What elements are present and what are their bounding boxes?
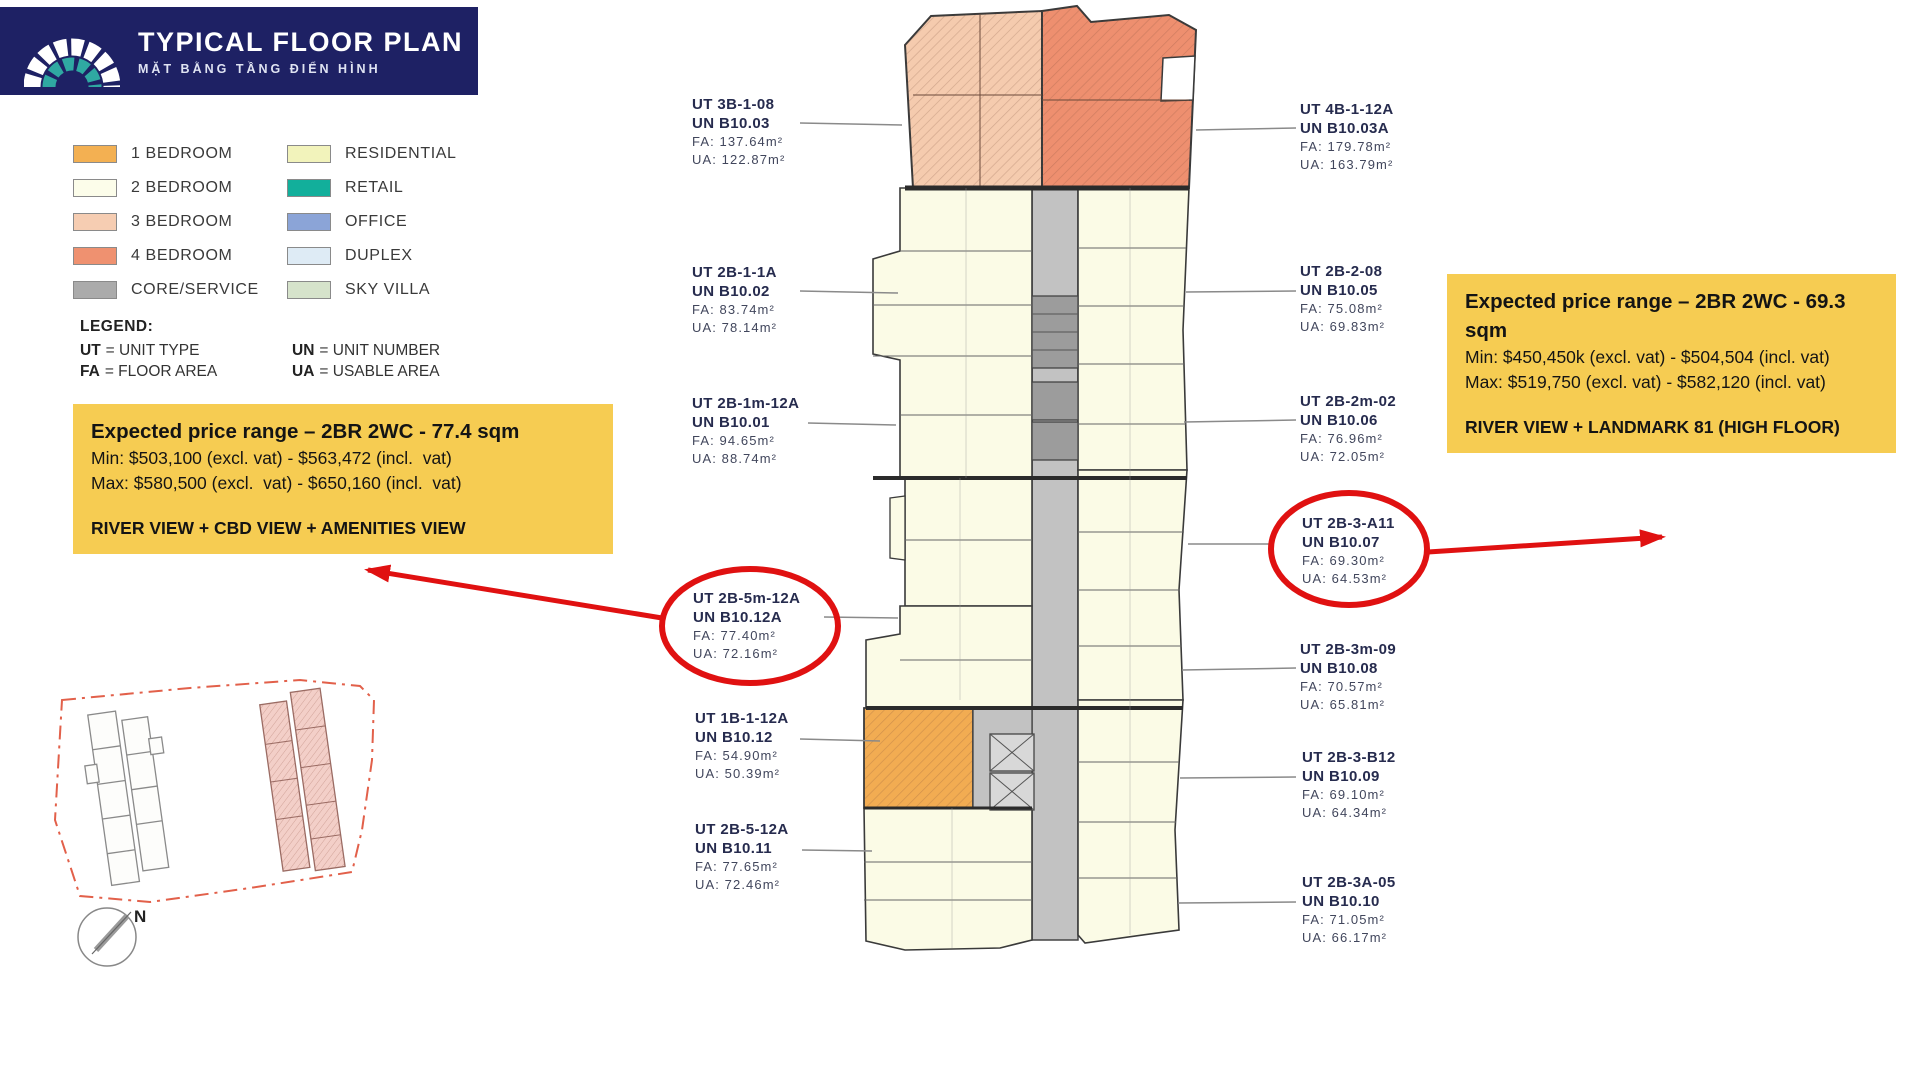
floor-area: FA: 94.65m² [692, 432, 799, 450]
unit-number: UN B10.06 [1300, 411, 1396, 430]
north-label: N [134, 907, 146, 926]
unit-number: UN B10.05 [1300, 281, 1385, 300]
typical-floor-plan-page: TYPICAL FLOOR PLAN MẶT BẰNG TẦNG ĐIỂN HÌ… [0, 0, 1920, 1080]
unit-type: UT 1B-1-12A [695, 709, 789, 728]
unit-type: UT 2B-3-B12 [1302, 748, 1396, 767]
floor-area: FA: 70.57m² [1300, 678, 1396, 696]
usable-area: UA: 64.53m² [1302, 570, 1395, 588]
usable-area: UA: 163.79m² [1300, 156, 1394, 174]
floor-area: FA: 76.96m² [1300, 430, 1396, 448]
unit-label-B10.01: UT 2B-1m-12A UN B10.01 FA: 94.65m² UA: 8… [692, 394, 799, 468]
usable-area: UA: 72.05m² [1300, 448, 1396, 466]
usable-area: UA: 72.16m² [693, 645, 800, 663]
floor-area: FA: 69.10m² [1302, 786, 1396, 804]
floor-area: FA: 75.08m² [1300, 300, 1385, 318]
unit-number: UN B10.11 [695, 839, 789, 858]
unit-label-B10.09: UT 2B-3-B12 UN B10.09 FA: 69.10m² UA: 64… [1302, 748, 1396, 822]
usable-area: UA: 72.46m² [695, 876, 789, 894]
unit-1br-orange [864, 708, 973, 808]
unit-number: UN B10.01 [692, 413, 799, 432]
mini-site-map: N [55, 680, 374, 966]
core-stairs [1032, 296, 1078, 368]
callout-view: RIVER VIEW + LANDMARK 81 (HIGH FLOOR) [1465, 417, 1880, 438]
unit-label-B10.11: UT 2B-5-12A UN B10.11 FA: 77.65m² UA: 72… [695, 820, 789, 894]
unit-label-B10.03: UT 3B-1-08 UN B10.03 FA: 137.64m² UA: 12… [692, 95, 785, 169]
floor-area: FA: 54.90m² [695, 747, 789, 765]
unit-type: UT 3B-1-08 [692, 95, 785, 114]
usable-area: UA: 122.87m² [692, 151, 785, 169]
floor-area: FA: 71.05m² [1302, 911, 1396, 929]
unit-number: UN B10.03 [692, 114, 785, 133]
price-callout-right: Expected price range – 2BR 2WC - 69.3 sq… [1447, 274, 1896, 453]
unit-type: UT 2B-5m-12A [693, 589, 800, 608]
balcony-notch [1161, 56, 1195, 101]
callout-title: Expected price range – 2BR 2WC - 69.3 sq… [1465, 287, 1880, 345]
unit-label-B10.03A: UT 4B-1-12A UN B10.03A FA: 179.78m² UA: … [1300, 100, 1394, 174]
unit-type: UT 2B-5-12A [695, 820, 789, 839]
callout-view: RIVER VIEW + CBD VIEW + AMENITIES VIEW [91, 518, 597, 539]
price-callout-left: Expected price range – 2BR 2WC - 77.4 sq… [73, 404, 613, 554]
unit-number: UN B10.08 [1300, 659, 1396, 678]
unit-label-B10.06: UT 2B-2m-02 UN B10.06 FA: 76.96m² UA: 72… [1300, 392, 1396, 466]
unit-number: UN B10.12A [693, 608, 800, 627]
unit-number: UN B10.09 [1302, 767, 1396, 786]
unit-number: UN B10.10 [1302, 892, 1396, 911]
unit-label-B10.12: UT 1B-1-12A UN B10.12 FA: 54.90m² UA: 50… [695, 709, 789, 783]
unit-type: UT 2B-3-A11 [1302, 514, 1395, 533]
unit-label-B10.07-circled: UT 2B-3-A11 UN B10.07 FA: 69.30m² UA: 64… [1302, 514, 1395, 588]
unit-type: UT 4B-1-12A [1300, 100, 1394, 119]
unit-label-B10.05: UT 2B-2-08 UN B10.05 FA: 75.08m² UA: 69.… [1300, 262, 1385, 336]
unit-number: UN B10.12 [695, 728, 789, 747]
unit-type: UT 2B-2-08 [1300, 262, 1385, 281]
usable-area: UA: 65.81m² [1300, 696, 1396, 714]
site-other-tower [78, 705, 181, 886]
unit-type: UT 2B-2m-02 [1300, 392, 1396, 411]
unit-type: UT 2B-3m-09 [1300, 640, 1396, 659]
callout-min: Min: $450,450k (excl. vat) - $504,504 (i… [1465, 345, 1880, 370]
callout-title: Expected price range – 2BR 2WC - 77.4 sq… [91, 417, 597, 446]
callout-min: Min: $503,100 (excl. vat) - $563,472 (in… [91, 446, 597, 471]
floor-area: FA: 69.30m² [1302, 552, 1395, 570]
usable-area: UA: 66.17m² [1302, 929, 1396, 947]
usable-area: UA: 50.39m² [695, 765, 789, 783]
floor-area: FA: 77.65m² [695, 858, 789, 876]
unit-label-B10.02: UT 2B-1-1A UN B10.02 FA: 83.74m² UA: 78.… [692, 263, 777, 337]
unit-type: UT 2B-1-1A [692, 263, 777, 282]
unit-number: UN B10.02 [692, 282, 777, 301]
callout-max: Max: $580,500 (excl. vat) - $650,160 (in… [91, 471, 597, 496]
unit-label-B10.08: UT 2B-3m-09 UN B10.08 FA: 70.57m² UA: 65… [1300, 640, 1396, 714]
unit-number: UN B10.07 [1302, 533, 1395, 552]
site-highlighted-tower [259, 688, 345, 875]
tower-floor-plan [864, 6, 1196, 950]
unit-label-B10.10: UT 2B-3A-05 UN B10.10 FA: 71.05m² UA: 66… [1302, 873, 1396, 947]
unit-type: UT 2B-1m-12A [692, 394, 799, 413]
usable-area: UA: 88.74m² [692, 450, 799, 468]
usable-area: UA: 78.14m² [692, 319, 777, 337]
unit-type: UT 2B-3A-05 [1302, 873, 1396, 892]
usable-area: UA: 69.83m² [1300, 318, 1385, 336]
floor-area: FA: 179.78m² [1300, 138, 1394, 156]
compass: N [78, 907, 146, 966]
unit-number: UN B10.03A [1300, 119, 1394, 138]
unit-label-B10.12A-circled: UT 2B-5m-12A UN B10.12A FA: 77.40m² UA: … [693, 589, 800, 663]
floor-area: FA: 137.64m² [692, 133, 785, 151]
usable-area: UA: 64.34m² [1302, 804, 1396, 822]
floor-area: FA: 83.74m² [692, 301, 777, 319]
floor-area: FA: 77.40m² [693, 627, 800, 645]
callout-max: Max: $519,750 (excl. vat) - $582,120 (in… [1465, 370, 1880, 395]
